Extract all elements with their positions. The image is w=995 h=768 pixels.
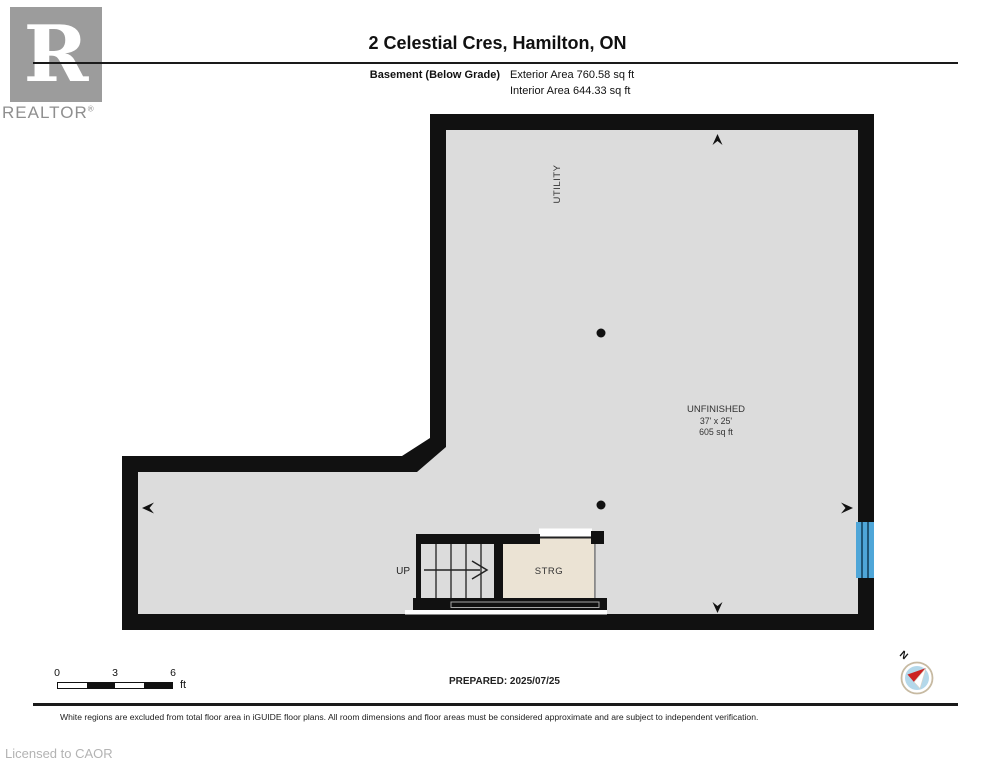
scale-tick-0: 0 (47, 667, 67, 679)
scale-bar-segment (87, 683, 116, 688)
stair-right-wall (494, 534, 503, 605)
scale-bar (57, 682, 173, 689)
floor-plan-page: R REALTOR® 2 Celestial Cres, Hamilton, O… (0, 0, 995, 768)
prepared-date: PREPARED: 2025/07/25 (449, 676, 560, 687)
utility-room-label: UTILITY (552, 164, 563, 203)
window-glass (856, 522, 874, 578)
scale-bar-segment (144, 683, 173, 688)
unfinished-room-area: 605 sq ft (699, 427, 733, 437)
unfinished-room-dimensions: 37' x 25' (700, 416, 733, 426)
support-column-dot (597, 501, 606, 510)
scale-tick-3: 3 (105, 667, 125, 679)
scale-bar-segment (115, 683, 144, 688)
stair-top-wall (416, 534, 540, 544)
wall-corner-post (591, 531, 604, 544)
wall-gap-strip (405, 610, 607, 615)
license-text: Licensed to CAOR (5, 746, 113, 761)
scale-bar-segment (58, 683, 87, 688)
footer-divider-line (33, 703, 958, 706)
disclaimer-text: White regions are excluded from total fl… (60, 712, 940, 722)
storage-doorway-line (539, 537, 592, 539)
compass-north-label: N (897, 649, 910, 662)
storage-room-label: STRG (535, 566, 563, 577)
unfinished-room-label: UNFINISHED (687, 404, 745, 415)
scale-unit-label: ft (180, 679, 186, 691)
stairs-up-label: UP (396, 566, 410, 577)
window (856, 522, 874, 578)
storage-right-partition (594, 537, 596, 598)
support-column-dot (597, 329, 606, 338)
compass: N (897, 649, 932, 693)
scale-tick-6: 6 (163, 667, 183, 679)
stair-bottom-wall (413, 598, 607, 610)
storage-doorway-gap (539, 529, 592, 537)
floor-plan-drawing: UTILITY UNFINISHED 37' x 25' 605 sq ft S… (0, 0, 995, 768)
stair-left-wall (416, 534, 421, 605)
